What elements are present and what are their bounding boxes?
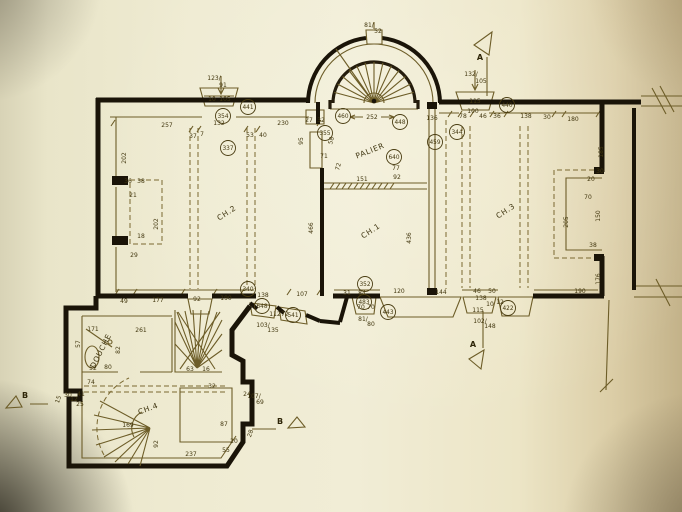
dimension-text: 252 [366,114,378,121]
dimension-text: 151 [356,176,368,183]
reference-number: 354 [217,114,228,120]
spiral-stair-treads [334,49,413,103]
room-label: CH.3 [494,201,517,220]
reference-number: 422 [502,306,513,312]
dimension-text: 107 [296,291,308,298]
dimension-text: 100 [467,108,479,115]
dimension-text: 21 [129,192,137,199]
reference-number: 440 [501,103,512,109]
dimension-text: 52 [374,28,382,35]
dimension-text: 55 [222,447,230,454]
reference-number: 340 [242,287,253,293]
dimension-text: 28 [246,429,255,439]
dimension-text: 27 [305,117,313,124]
dimension-text: 31 [343,290,351,297]
dimension-text: 29 [130,252,138,259]
dimension-texts: 123/911010513281/52252132/10511510025737… [54,22,605,458]
dimension-text: 135 [267,327,279,334]
section-arrow-b-left [6,396,22,408]
dimension-text: 25 [76,401,84,408]
winder-stair [175,310,222,369]
room-label: CH.1 [359,221,382,240]
dimension-text: 80 [104,364,112,371]
dimension-text: 15 [54,395,63,405]
dimension-text: 257 [161,122,173,129]
dimension-text: 105 [219,96,231,103]
dimension-text: 91 [219,82,227,89]
dimension-text: 16 [202,366,210,373]
reference-number: 541 [287,313,298,319]
dimension-text: 20 [587,176,595,183]
dimension-text: 202 [121,152,128,164]
dimension-text: 120 [393,288,405,295]
dimension-text: 74 [87,379,95,386]
stair-tower [308,30,440,109]
dimension-text: 466 [308,222,315,234]
reference-number: 640 [388,155,399,161]
dimension-text: 123/ [207,75,221,82]
dimension-text: 20 [230,438,238,445]
dimension-text: 46 [473,288,481,295]
reference-number: 448 [394,120,405,126]
dimension-text: 112 [269,311,281,318]
dimension-text: 105 [475,78,487,85]
reference-number: 460 [337,114,348,120]
dimension-text: 10 [486,301,494,308]
section-label-b-right: B [277,417,283,426]
dimension-text: 115 [472,307,484,314]
dimension-text: 30 [596,168,604,175]
dimension-text: 180 [567,116,579,123]
dimension-text: 138 [257,292,269,299]
dimension-text: 38 [589,242,597,249]
dimension-text: 87 [220,421,228,428]
dimension-text: 78 [459,113,467,120]
dimension-text: 92 [393,174,401,181]
dimension-text: 202 [153,218,160,230]
dimension-text: 77 [392,165,400,172]
section-label-b-left: B [22,391,28,400]
section-label-a-bottom: A [470,340,477,349]
dimension-text: 53 [246,132,254,139]
dimension-text: 144 [435,289,447,296]
dimension-text: 82 [115,346,122,354]
dimension-text: 63 [186,366,194,373]
reference-number: 459 [429,140,440,146]
dimension-text: 190 [574,288,586,295]
flue-shaft-dashed [130,180,162,244]
dimension-text: 148 [484,323,496,330]
room-label: CH.2 [215,203,238,222]
dimension-text: 92 [193,296,201,303]
dimension-text: 46 [479,113,487,120]
dimension-text: 32 [317,117,325,124]
dimension-text: 95 [298,137,305,145]
dimension-text: 70 [584,194,592,201]
reference-number: 441 [242,105,253,111]
dimension-text: 38 [137,178,145,185]
dimension-text: 30 [543,114,551,121]
dimension-text: 261 [135,327,147,334]
dimension-text: 57 [75,340,82,348]
dimension-text: 36 [493,113,501,120]
dimension-text: 18 [137,233,145,240]
reference-number: 352 [359,282,370,288]
room-label: PALIER [354,141,385,161]
dimension-text: 115 [469,98,481,105]
hall-door-leaf [310,132,322,168]
section-arrow-a-top [474,32,492,55]
reference-number: 648 [256,304,267,310]
dimension-text: 71 [320,153,328,160]
dimension-text: 190 [220,295,232,302]
dimension-text: 37 [189,133,197,140]
dimension-text: 132/ [464,71,478,78]
reference-number: 355 [319,131,330,137]
dimension-text: 138 [475,295,487,302]
dimension-text: 80 [367,321,375,328]
reference-number: 344 [451,130,462,136]
dimension-text: 436 [406,232,413,244]
reference-number: 337 [222,146,233,152]
section-arrow-b-right [288,417,305,428]
dimension-text: 7 [200,131,204,138]
pilaster-lower [112,236,128,245]
reference-number: 483 [358,300,369,306]
dimension-text: 69 [256,399,264,406]
dimension-text: 49 [120,298,128,305]
dimension-text: 136 [426,115,438,122]
room-labels: CH.2CH.1CH.3CH.4PALIERDOUCHE [88,141,517,417]
dimension-text: 177 [152,297,164,304]
section-arrow-a-bottom [469,350,484,369]
dimension-text: 92 [153,440,160,448]
wall-break-ticks [600,86,674,392]
dimension-text: 72 [334,162,343,171]
dimension-text: 169 [122,422,134,429]
niche-jamb-bottom [594,254,604,261]
dimension-text: 10 [208,96,216,103]
dimension-text: 237 [185,451,197,458]
stair-well-rect [180,388,232,442]
dimension-text: 36 [124,178,132,185]
dimension-text: 50 [488,288,496,295]
newel-post [372,99,377,104]
dimension-text: 52 [89,365,97,372]
dimension-text: 41 [77,391,85,398]
dimension-text: 205 [563,216,570,228]
dimension-text: 150 [595,210,602,222]
paper-background: A A B B CH.2CH.1CH.3CH.4PALIERDOUCHE 123… [0,0,682,512]
dimension-text: 185 [598,146,605,158]
room-label: CH.4 [137,401,160,417]
dimension-text: 32 [208,383,216,390]
dimension-text: 230 [277,120,289,127]
dimension-text: 176 [595,273,602,285]
niche-dashed [554,170,594,258]
dimension-text: 40 [259,132,267,139]
section-markers: A A B B [6,32,492,428]
dimension-text: 138 [520,113,532,120]
section-label-a-top: A [477,53,484,62]
reference-number: 443 [382,310,393,316]
dimension-text: 171 [87,326,99,333]
floor-plan-drawing: A A B B CH.2CH.1CH.3CH.4PALIERDOUCHE 123… [0,0,682,512]
